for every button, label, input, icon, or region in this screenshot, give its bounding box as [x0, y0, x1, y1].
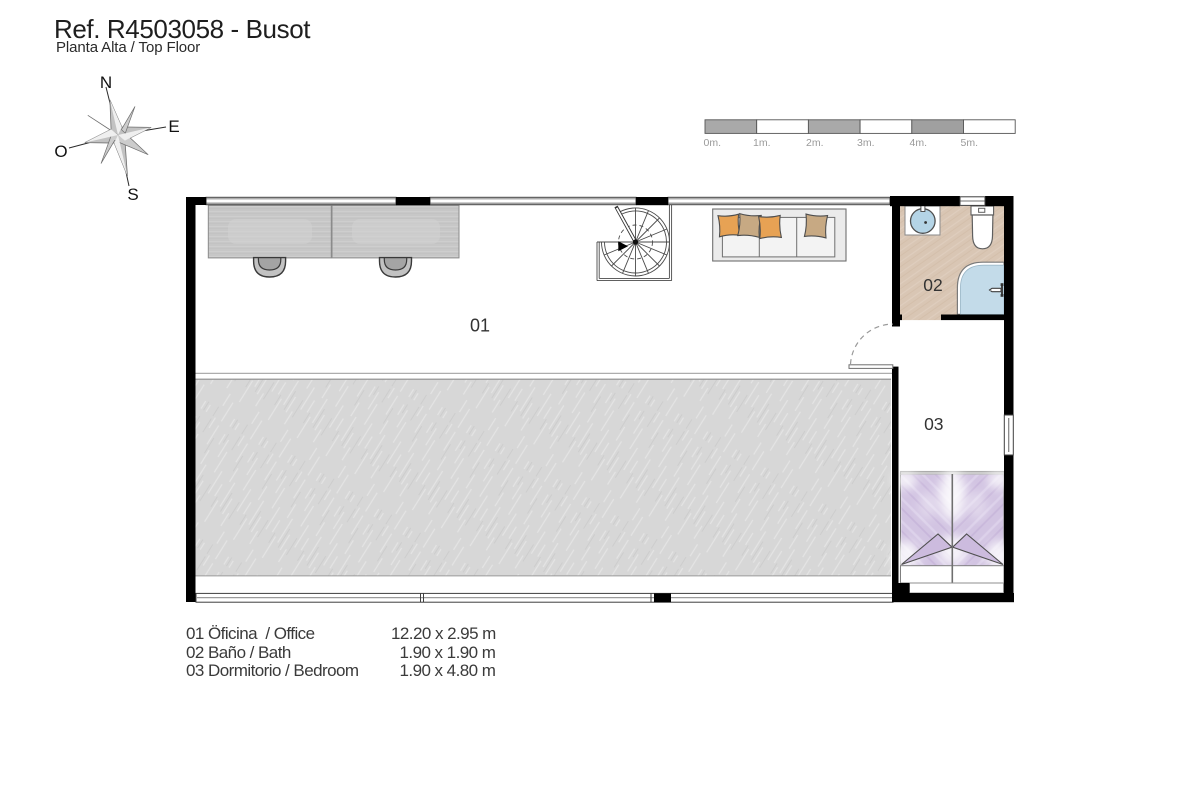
svg-text:N: N: [100, 73, 112, 92]
svg-text:5m.: 5m.: [961, 137, 979, 149]
svg-text:4m.: 4m.: [910, 137, 928, 149]
svg-text:0m.: 0m.: [704, 137, 722, 149]
svg-text:3m.: 3m.: [857, 137, 875, 149]
svg-text:2m.: 2m.: [806, 137, 824, 149]
svg-text:S: S: [127, 185, 138, 204]
svg-text:02: 02: [923, 275, 942, 295]
svg-text:O: O: [54, 142, 67, 161]
svg-text:1m.: 1m.: [753, 137, 771, 149]
svg-text:01: 01: [470, 316, 490, 336]
svg-text:E: E: [168, 117, 179, 136]
svg-text:03: 03: [924, 414, 943, 434]
